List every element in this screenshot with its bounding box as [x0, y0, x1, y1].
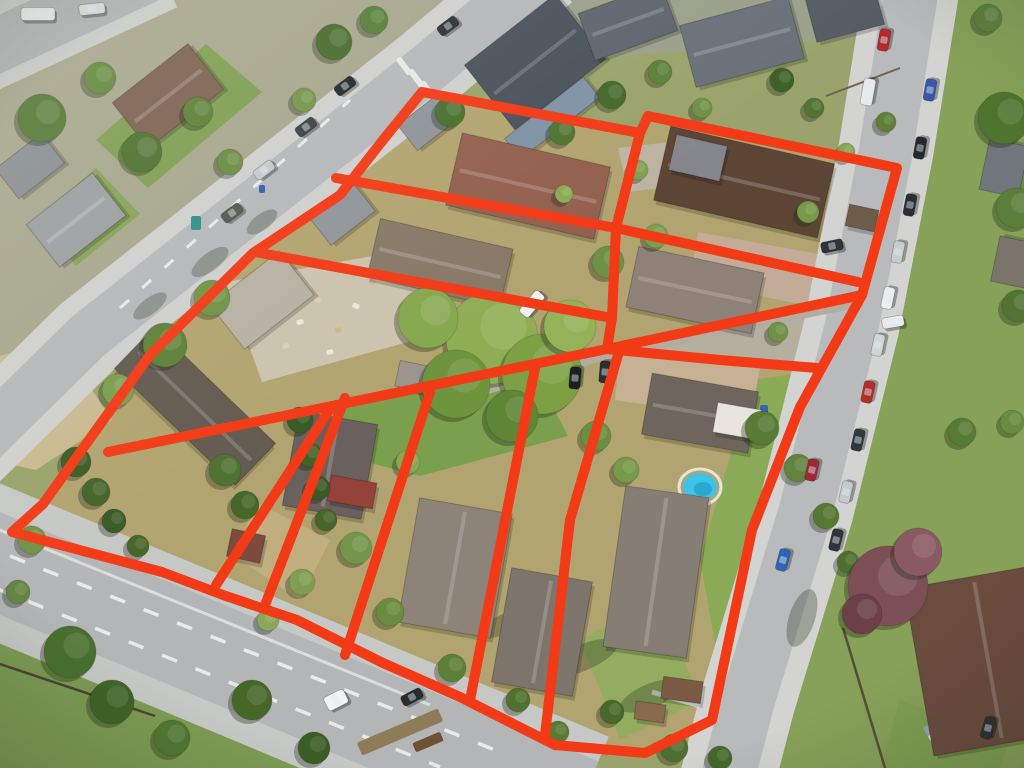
aerial-photo-stage — [0, 0, 1024, 768]
vignette-overlay — [0, 0, 1024, 768]
aerial-land-assembly-photo — [0, 0, 1024, 768]
